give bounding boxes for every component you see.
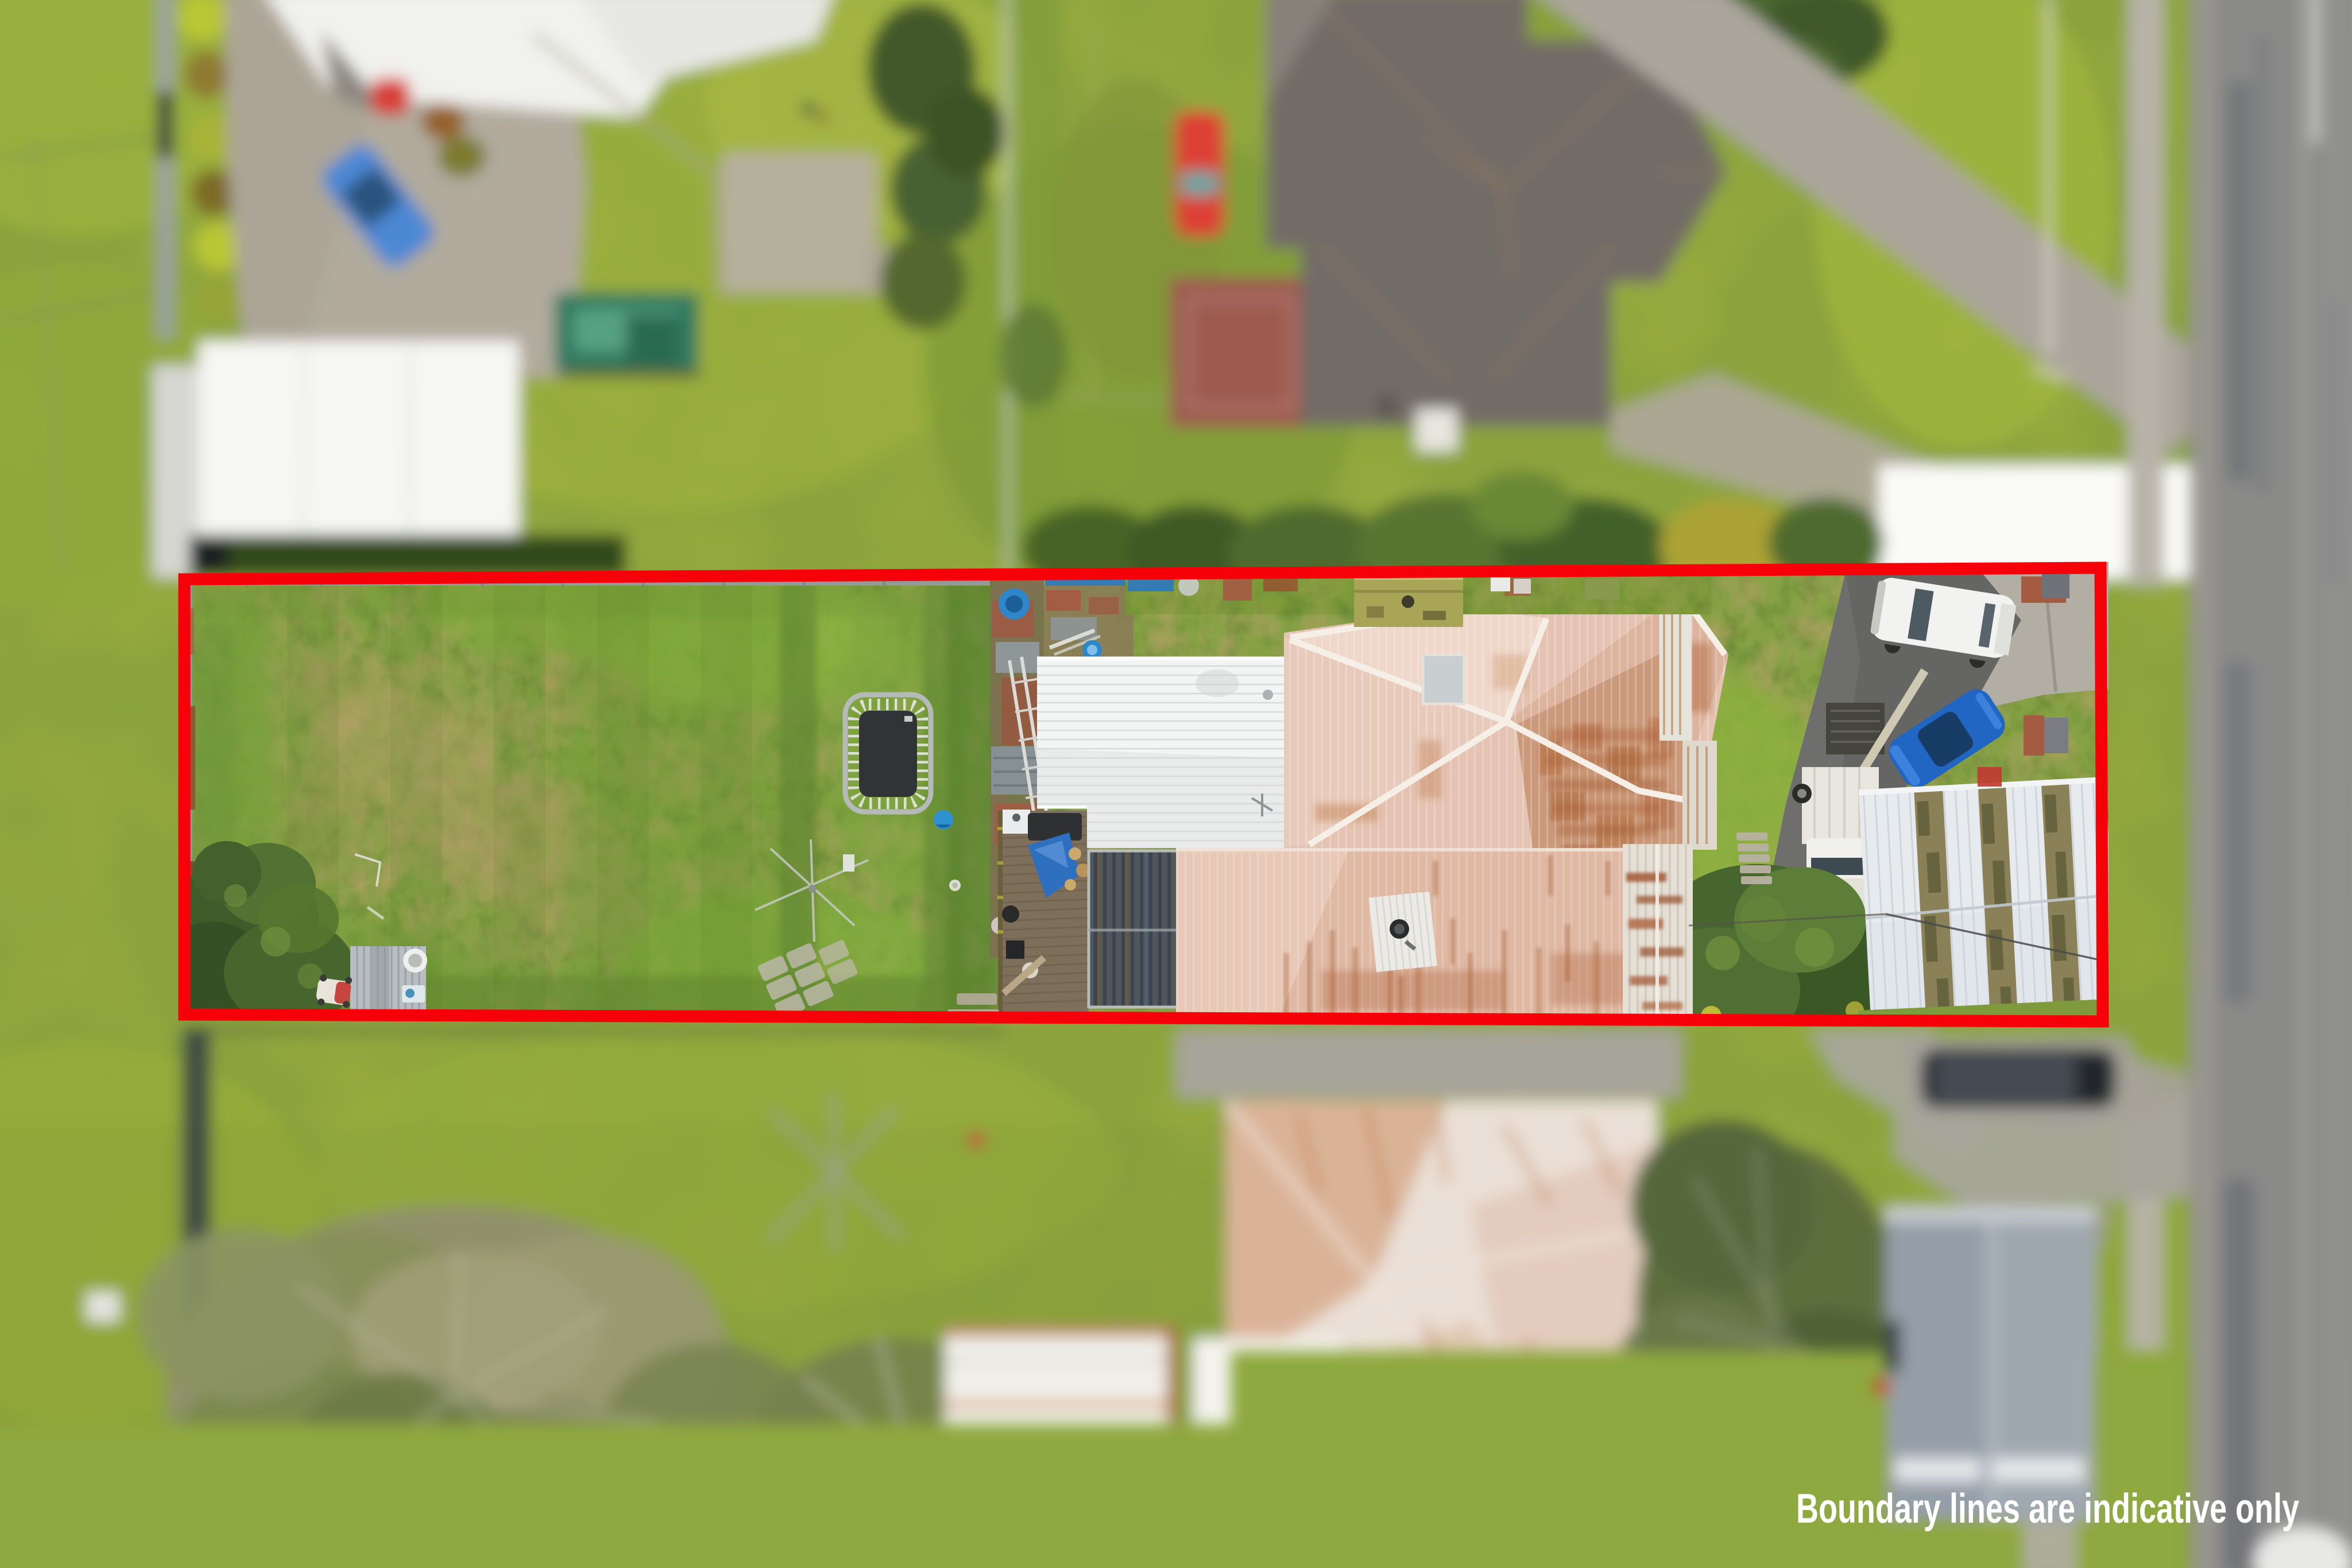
svg-text:Boundary lines are indicative: Boundary lines are indicative only bbox=[1796, 1486, 2299, 1532]
